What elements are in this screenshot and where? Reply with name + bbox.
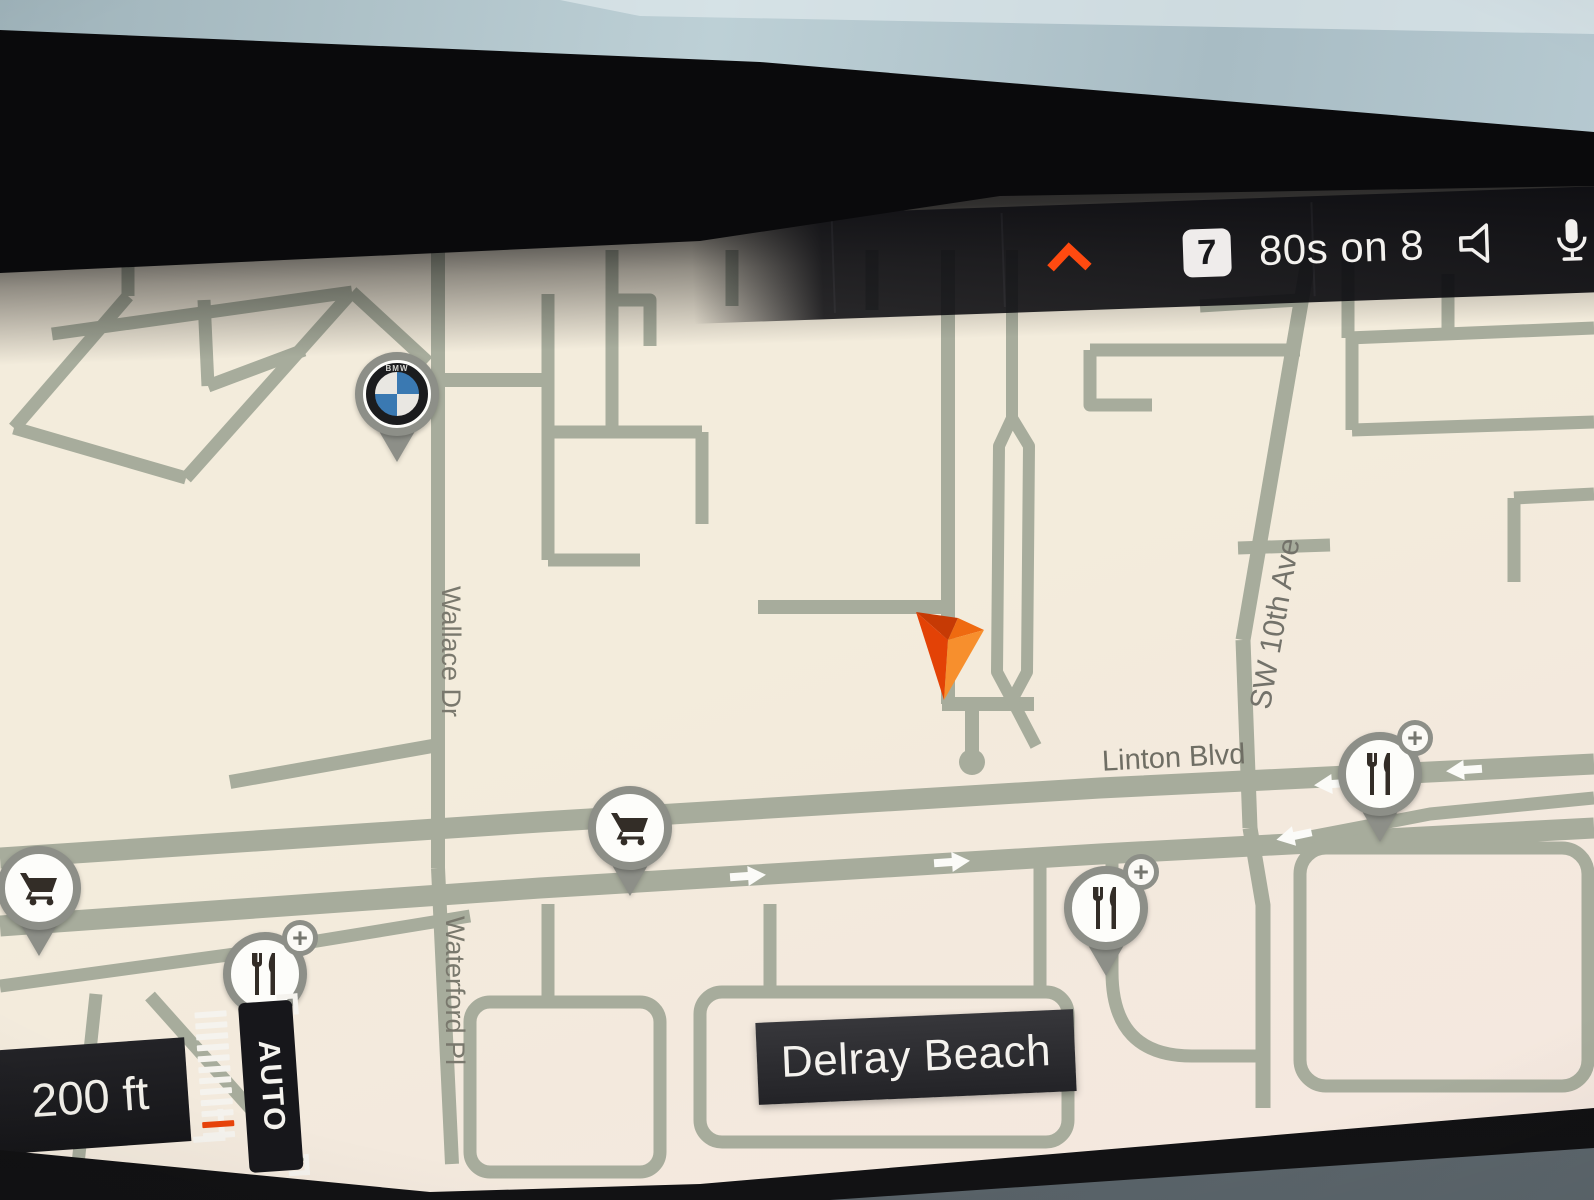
zoom-tick-current xyxy=(202,1120,234,1128)
infotainment-screen: Wallace Dr Waterford Pl Linton Blvd SW 1… xyxy=(0,0,1594,1200)
shopping-cart-icon xyxy=(18,869,60,907)
bmw-roundel-icon: BMW xyxy=(366,363,428,425)
grocery-poi-pin[interactable] xyxy=(0,846,84,966)
zoom-tick xyxy=(197,1054,229,1062)
pin-plus-badge: + xyxy=(1123,854,1159,890)
scale-label: 200 ft xyxy=(29,1064,150,1127)
bmw-roundel-text: BMW xyxy=(386,364,409,373)
pin-plus-badge: + xyxy=(1397,720,1433,756)
status-separator xyxy=(1001,213,1006,307)
bmw-dealer-pin[interactable]: BMW xyxy=(352,352,442,472)
zoom-tick xyxy=(201,1109,233,1117)
pin-bulb xyxy=(0,846,81,930)
city-label: Delray Beach xyxy=(755,1009,1076,1105)
zoom-tick xyxy=(197,1043,229,1051)
vehicle-position-arrow xyxy=(916,612,984,700)
zoom-tick xyxy=(201,1098,233,1106)
zoom-tick xyxy=(196,1032,228,1040)
status-separator xyxy=(831,219,836,313)
grocery-poi-pin[interactable] xyxy=(585,786,675,906)
speaker-icon[interactable] xyxy=(1453,220,1505,268)
fork-knife-icon xyxy=(248,952,282,996)
shopping-cart-icon xyxy=(609,809,651,847)
chevron-up-icon[interactable] xyxy=(1042,240,1095,276)
zoom-tick xyxy=(198,1065,230,1073)
zoom-tick xyxy=(199,1076,231,1084)
auto-corner-bracket xyxy=(288,1154,310,1176)
zoom-tick xyxy=(200,1087,232,1095)
zoom-tick xyxy=(195,1021,227,1029)
zoom-tick xyxy=(194,1010,226,1018)
map-scale-readout: 200 ft xyxy=(0,1037,191,1154)
now-playing-title[interactable]: 80s on 8 xyxy=(1258,221,1425,275)
auto-corner-bracket xyxy=(276,993,298,1015)
microphone-icon[interactable] xyxy=(1549,216,1594,264)
pin-bulb: BMW xyxy=(355,352,439,436)
auto-label: AUTO xyxy=(251,1039,291,1134)
restaurant-poi-pin[interactable]: + xyxy=(1061,866,1151,986)
map-canvas[interactable]: Wallace Dr Waterford Pl Linton Blvd SW 1… xyxy=(0,0,1594,1200)
radio-preset-badge[interactable]: 7 xyxy=(1182,228,1232,278)
street-label-waterford: Waterford Pl xyxy=(439,916,470,1065)
pin-plus-badge: + xyxy=(282,920,318,956)
pin-bulb xyxy=(588,786,672,870)
zoom-control[interactable]: 200 ft AUTO xyxy=(0,1037,191,1154)
fork-knife-icon xyxy=(1363,752,1397,796)
restaurant-poi-pin[interactable]: + xyxy=(1335,732,1425,852)
street-label-wallace: Wallace Dr xyxy=(435,586,466,717)
fork-knife-icon xyxy=(1089,886,1123,930)
